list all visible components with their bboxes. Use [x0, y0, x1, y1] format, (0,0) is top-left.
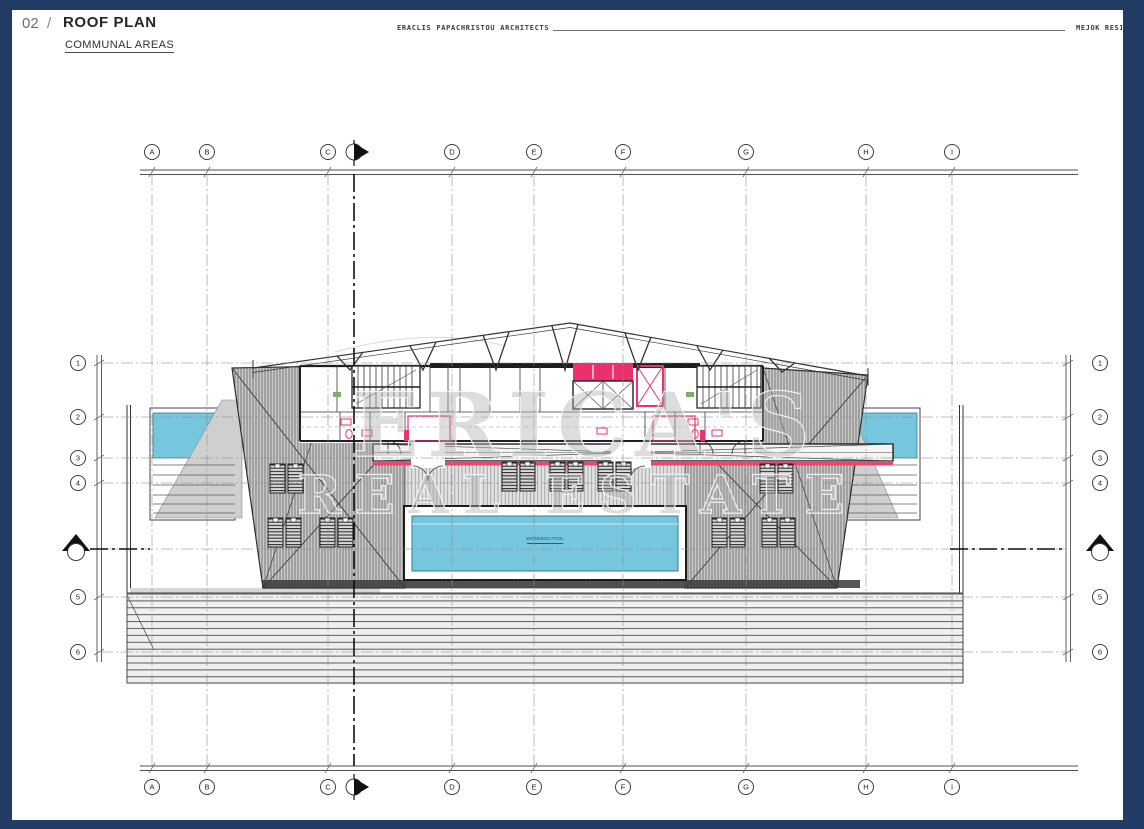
svg-text:F: F — [621, 148, 626, 157]
page-subtitle: COMMUNAL AREAS — [65, 39, 174, 53]
svg-text:5: 5 — [1098, 593, 1102, 602]
drawing-sheet: SWIMMING POOL — [0, 0, 1144, 829]
svg-text:H: H — [863, 148, 868, 157]
svg-text:H: H — [863, 783, 868, 792]
project-name: MEJOK RESI — [1076, 24, 1122, 32]
svg-text:3: 3 — [76, 454, 80, 463]
svg-text:C: C — [325, 783, 331, 792]
watermark-line2: REAL ESTATE — [298, 465, 859, 526]
section-marker-bottom — [346, 774, 369, 800]
eave-edge-band — [262, 580, 860, 588]
svg-text:B: B — [204, 783, 209, 792]
section-marker-left — [62, 534, 90, 561]
left-water-feature — [150, 400, 242, 520]
svg-text:B: B — [204, 148, 209, 157]
architect-name: ERACLIS PAPACHRISTOU ARCHITECTS — [397, 24, 549, 32]
title-separator: / — [47, 15, 51, 32]
svg-text:G: G — [743, 783, 749, 792]
svg-text:1: 1 — [1098, 359, 1102, 368]
pool-label: SWIMMING POOL — [526, 536, 564, 541]
svg-text:I: I — [951, 148, 953, 157]
section-marker-top — [346, 140, 369, 166]
pool-label-underline — [527, 543, 563, 544]
planter — [333, 392, 341, 397]
watermark: ERICA'S REAL ESTATE — [298, 373, 859, 526]
svg-text:6: 6 — [76, 648, 80, 657]
svg-text:A: A — [149, 783, 154, 792]
page-title: ROOF PLAN — [63, 14, 157, 31]
section-marker-right — [1086, 534, 1114, 561]
sheet-number: 02 — [22, 15, 39, 32]
roof-plan-drawing: SWIMMING POOL — [0, 0, 1144, 829]
svg-text:3: 3 — [1098, 454, 1102, 463]
svg-text:G: G — [743, 148, 749, 157]
svg-text:4: 4 — [1098, 479, 1102, 488]
svg-text:6: 6 — [1098, 648, 1102, 657]
svg-text:A: A — [149, 148, 154, 157]
svg-text:D: D — [449, 148, 455, 157]
svg-text:1: 1 — [76, 359, 80, 368]
svg-text:4: 4 — [76, 479, 80, 488]
svg-text:E: E — [531, 783, 536, 792]
svg-text:C: C — [325, 148, 331, 157]
svg-text:I: I — [951, 783, 953, 792]
header-rule — [553, 30, 1065, 31]
svg-text:D: D — [449, 783, 455, 792]
svg-text:F: F — [621, 783, 626, 792]
watermark-line1: ERICA'S — [352, 373, 818, 477]
svg-text:2: 2 — [76, 413, 80, 422]
svg-text:2: 2 — [1098, 413, 1102, 422]
svg-text:E: E — [531, 148, 536, 157]
terrace-steps — [127, 588, 963, 683]
svg-text:5: 5 — [76, 593, 80, 602]
